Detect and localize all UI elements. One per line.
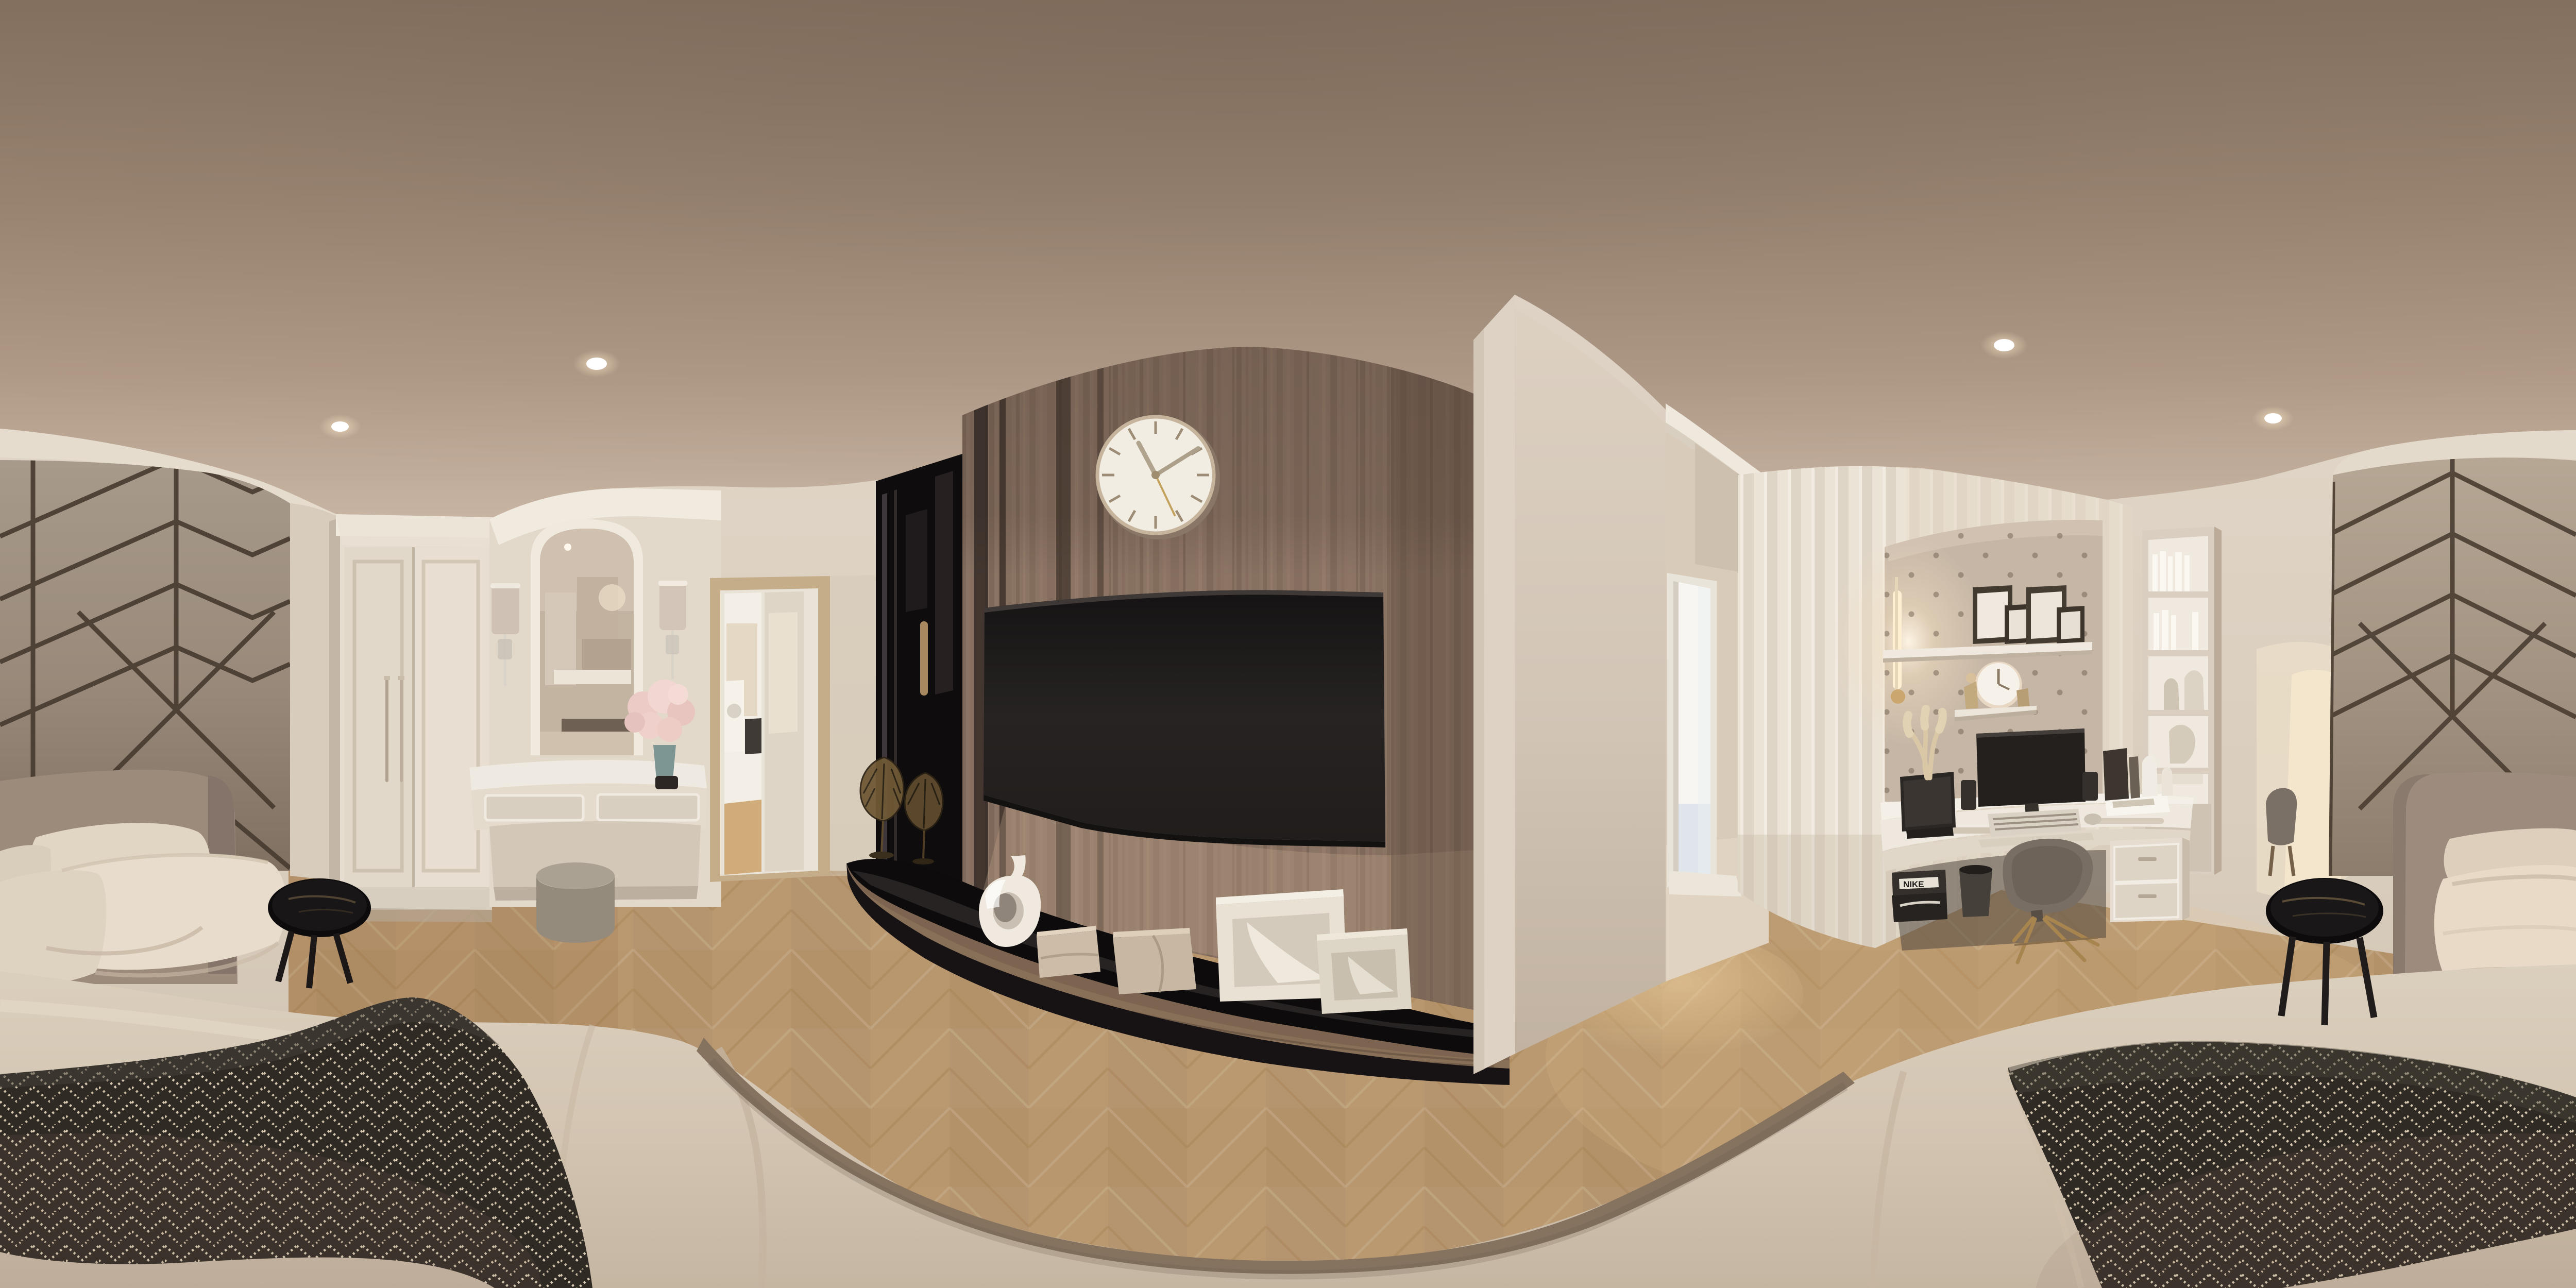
svg-text:NIKE: NIKE — [1903, 879, 1924, 889]
